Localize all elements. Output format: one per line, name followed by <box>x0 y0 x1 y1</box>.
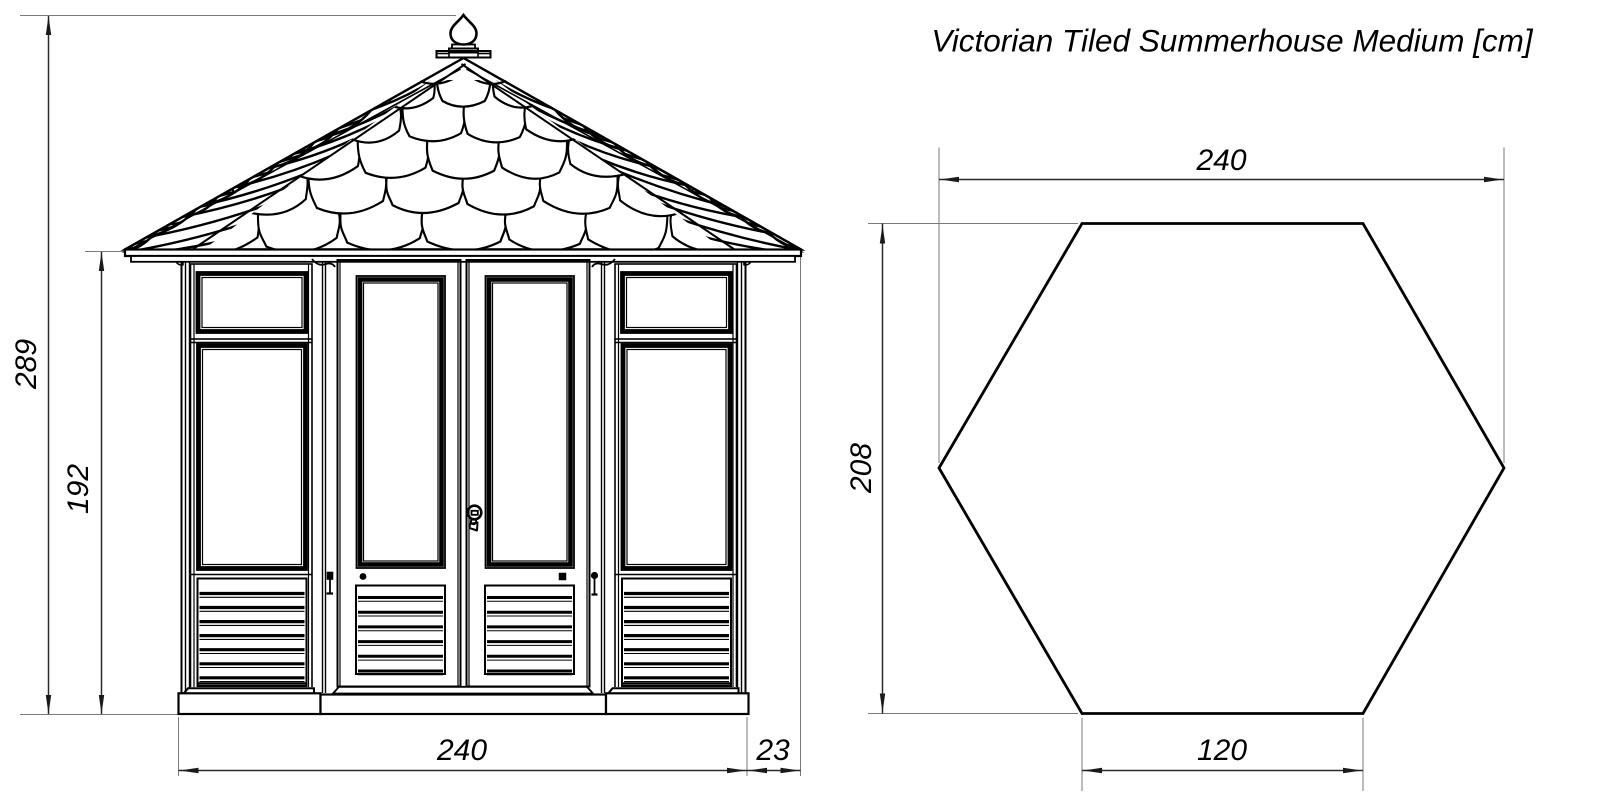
svg-text:289: 289 <box>10 339 43 390</box>
svg-text:192: 192 <box>62 464 95 514</box>
svg-text:240: 240 <box>1195 144 1246 177</box>
svg-text:208: 208 <box>845 443 878 494</box>
svg-text:Victorian Tiled Summerhouse Me: Victorian Tiled Summerhouse Medium [cm] <box>931 23 1534 59</box>
svg-text:240: 240 <box>436 734 487 767</box>
svg-text:23: 23 <box>755 734 790 767</box>
svg-text:120: 120 <box>1197 734 1247 767</box>
